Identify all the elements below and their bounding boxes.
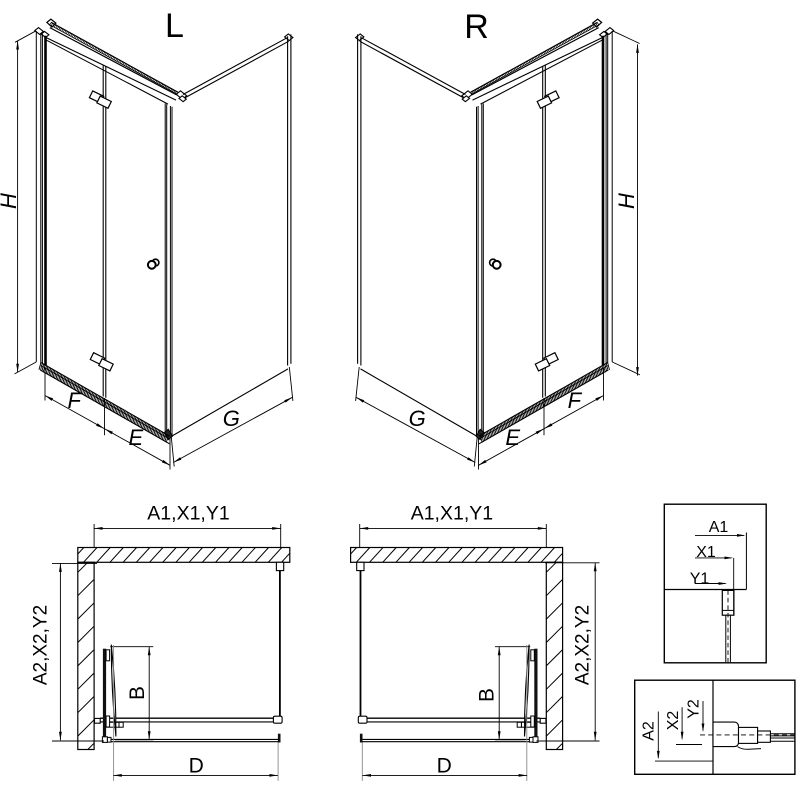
- svg-text:Y1: Y1: [690, 571, 710, 588]
- svg-text:B: B: [476, 688, 499, 702]
- svg-text:B: B: [126, 686, 149, 700]
- svg-text:X1: X1: [696, 544, 716, 561]
- svg-text:E: E: [128, 425, 143, 450]
- svg-text:A1,X1,Y1: A1,X1,Y1: [411, 503, 493, 525]
- svg-text:F: F: [568, 388, 583, 413]
- svg-text:G: G: [409, 406, 426, 431]
- svg-text:D: D: [189, 755, 204, 778]
- svg-text:F: F: [67, 388, 82, 413]
- svg-text:H: H: [0, 193, 21, 209]
- svg-text:A2,X2,Y2: A2,X2,Y2: [31, 605, 52, 685]
- svg-text:A2: A2: [641, 721, 658, 741]
- svg-text:A1,X1,Y1: A1,X1,Y1: [147, 503, 229, 525]
- svg-text:R: R: [464, 8, 489, 46]
- svg-text:H: H: [614, 193, 639, 209]
- svg-text:Y2: Y2: [686, 699, 703, 719]
- svg-text:A1: A1: [709, 519, 729, 536]
- svg-text:X2: X2: [665, 711, 682, 731]
- svg-text:G: G: [223, 406, 240, 431]
- svg-text:E: E: [505, 425, 520, 450]
- svg-text:A2,X2,Y2: A2,X2,Y2: [573, 605, 594, 685]
- svg-text:L: L: [165, 7, 184, 45]
- svg-text:D: D: [437, 755, 452, 778]
